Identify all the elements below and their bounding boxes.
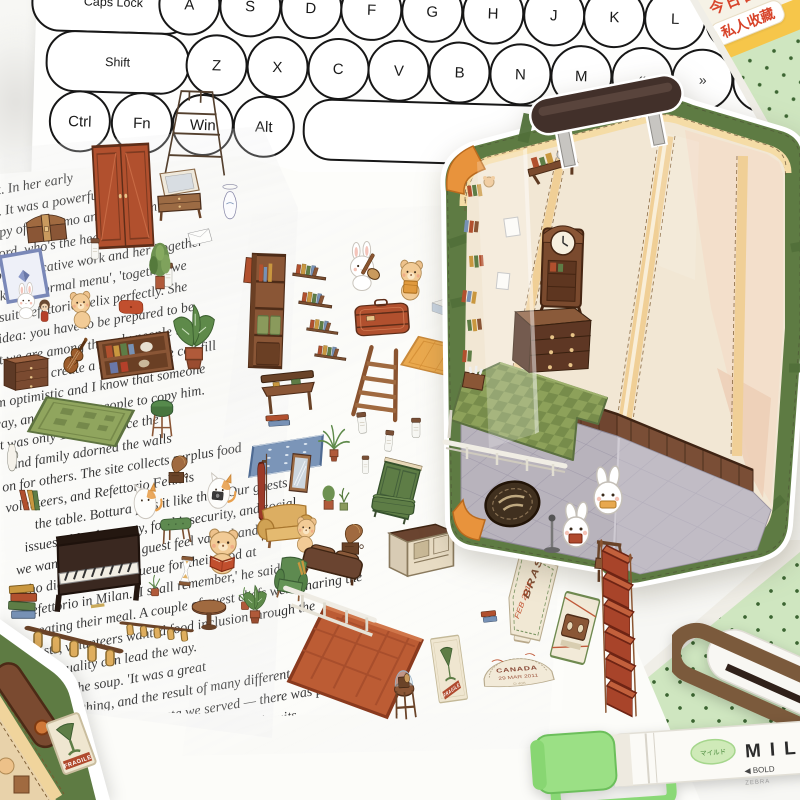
tableround-sticker: [188, 596, 230, 634]
bookstiny-sticker: [475, 599, 504, 630]
chest-sticker: [20, 203, 72, 248]
bookshelflow-sticker: [93, 323, 178, 387]
bookslean-sticker: [12, 480, 44, 514]
suitcase-room-playset: [405, 68, 800, 593]
jar-sticker: [86, 234, 104, 262]
stoolgreen-sticker: [142, 394, 182, 442]
plantbush-sticker: [142, 236, 178, 292]
scene: Caps LockASDFGHJKLShiftZXCVBNM«»CtrlFnWi…: [0, 0, 800, 800]
plantpalm-sticker: [314, 420, 354, 468]
key-alt-label: Alt: [255, 118, 273, 136]
railingwhite-sticker: [284, 568, 376, 652]
vasejug-sticker: [0, 436, 24, 474]
bunnyguitar-sticker: [338, 242, 386, 292]
key-F: F: [340, 0, 404, 42]
key-V-label: V: [394, 62, 405, 79]
benchgreen-sticker: [155, 505, 198, 550]
stairsred-sticker: [592, 540, 650, 720]
shelfbooksrow-sticker: [312, 336, 350, 368]
grandfather-clock-icon: [541, 225, 584, 313]
key-J-label: J: [550, 7, 558, 24]
key-X-label: X: [272, 59, 283, 76]
key-D: D: [279, 0, 343, 40]
key-shift-label: Shift: [105, 55, 130, 70]
key-X: X: [245, 35, 309, 99]
key-A-label: A: [184, 0, 195, 13]
key-D-label: D: [305, 0, 316, 17]
bunnygirl-sticker: [12, 282, 56, 328]
bear-sticker: [60, 282, 102, 331]
key-H: H: [461, 0, 525, 45]
key-S-label: S: [245, 0, 256, 15]
vasewhite-sticker: [212, 182, 248, 222]
cushionred-sticker: [112, 292, 149, 322]
key-C-label: C: [332, 60, 343, 77]
key-S: S: [218, 0, 282, 38]
plantmonstera-sticker: [238, 580, 272, 624]
violin-sticker: [54, 334, 96, 382]
gramostool-sticker: [379, 647, 428, 726]
key-L-label: L: [671, 10, 680, 27]
closed-suitcase-corner: FRAGILE: [0, 594, 154, 800]
key-G-label: G: [426, 3, 438, 20]
papernote-sticker: [185, 224, 216, 250]
mild-marker: マイルド MILD ◀ BOLD ZEBRA: [528, 712, 800, 800]
hourglass-sticker: [174, 555, 197, 587]
catcam-sticker: [198, 464, 244, 517]
vanity-sticker: [146, 166, 212, 226]
coatrack-sticker: [150, 85, 235, 180]
key-F-label: F: [367, 1, 377, 18]
key-J: J: [522, 0, 586, 47]
bearreading-sticker: [195, 519, 252, 578]
key-H-label: H: [487, 5, 498, 22]
jar-sticker: [358, 452, 373, 476]
key-G: G: [400, 0, 464, 44]
key-C: C: [306, 37, 370, 101]
key-fn-label: Fn: [133, 114, 151, 132]
key-ctrl-label: Ctrl: [68, 112, 92, 130]
shelftall-sticker: [242, 249, 292, 373]
key-K-label: K: [609, 8, 620, 25]
jar-sticker: [351, 407, 374, 437]
key-K: K: [583, 0, 647, 49]
key-alt: Alt: [232, 95, 296, 159]
bookstiny-sticker: [257, 403, 299, 434]
marker-series: ZEBRA: [745, 779, 770, 787]
mirrorframe-sticker: [282, 450, 318, 495]
key-Z-label: Z: [212, 57, 222, 74]
ruggreen-sticker: [24, 384, 138, 458]
key-caps-lock-label: Caps Lock: [84, 0, 143, 10]
